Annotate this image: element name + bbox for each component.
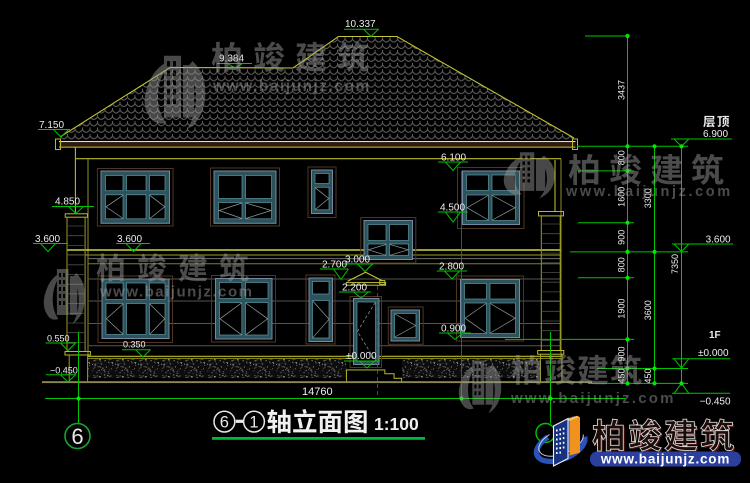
- svg-text:3600: 3600: [643, 300, 653, 320]
- svg-text:6: 6: [220, 414, 229, 432]
- svg-text:3.600: 3.600: [706, 235, 731, 246]
- svg-text:www.baijunjz.com: www.baijunjz.com: [99, 284, 253, 301]
- svg-text:1900: 1900: [617, 299, 627, 319]
- svg-text:0.900: 0.900: [441, 324, 466, 335]
- svg-text:±0.000: ±0.000: [346, 351, 377, 362]
- svg-text:±0.000: ±0.000: [698, 348, 729, 359]
- svg-text:6.900: 6.900: [703, 129, 728, 140]
- svg-text:2.200: 2.200: [342, 283, 367, 294]
- svg-text:4.500: 4.500: [440, 203, 465, 214]
- svg-text:800: 800: [617, 257, 627, 272]
- svg-text:4.850: 4.850: [55, 197, 80, 208]
- svg-text:10.337: 10.337: [345, 19, 376, 30]
- svg-text:−0.450: −0.450: [700, 397, 731, 408]
- svg-text:2.800: 2.800: [439, 262, 464, 273]
- svg-text:1F: 1F: [709, 330, 721, 341]
- svg-text:1:100: 1:100: [374, 414, 419, 434]
- svg-text:www.baijunjz.com: www.baijunjz.com: [510, 390, 676, 407]
- svg-text:0.350: 0.350: [123, 340, 146, 350]
- svg-text:www.baijunjz.com: www.baijunjz.com: [600, 452, 730, 467]
- svg-text:3.600: 3.600: [117, 234, 142, 245]
- svg-text:0.550: 0.550: [47, 334, 70, 344]
- svg-text:900: 900: [617, 230, 627, 245]
- svg-text:450: 450: [643, 368, 653, 383]
- svg-text:6: 6: [71, 424, 83, 449]
- svg-text:www.baijunjz.com: www.baijunjz.com: [565, 184, 733, 200]
- svg-text:3.000: 3.000: [345, 255, 370, 266]
- svg-text:7.150: 7.150: [39, 120, 64, 131]
- svg-text:14760: 14760: [302, 386, 333, 398]
- svg-text:1: 1: [249, 414, 258, 432]
- svg-text:2.700: 2.700: [322, 260, 347, 271]
- svg-text:3.600: 3.600: [35, 234, 60, 245]
- svg-text:−0.450: −0.450: [50, 366, 78, 376]
- svg-text:www.baijunjz.com: www.baijunjz.com: [212, 78, 371, 95]
- svg-text:6.100: 6.100: [441, 153, 466, 164]
- svg-text:3437: 3437: [617, 80, 627, 100]
- svg-text:7350: 7350: [670, 254, 680, 274]
